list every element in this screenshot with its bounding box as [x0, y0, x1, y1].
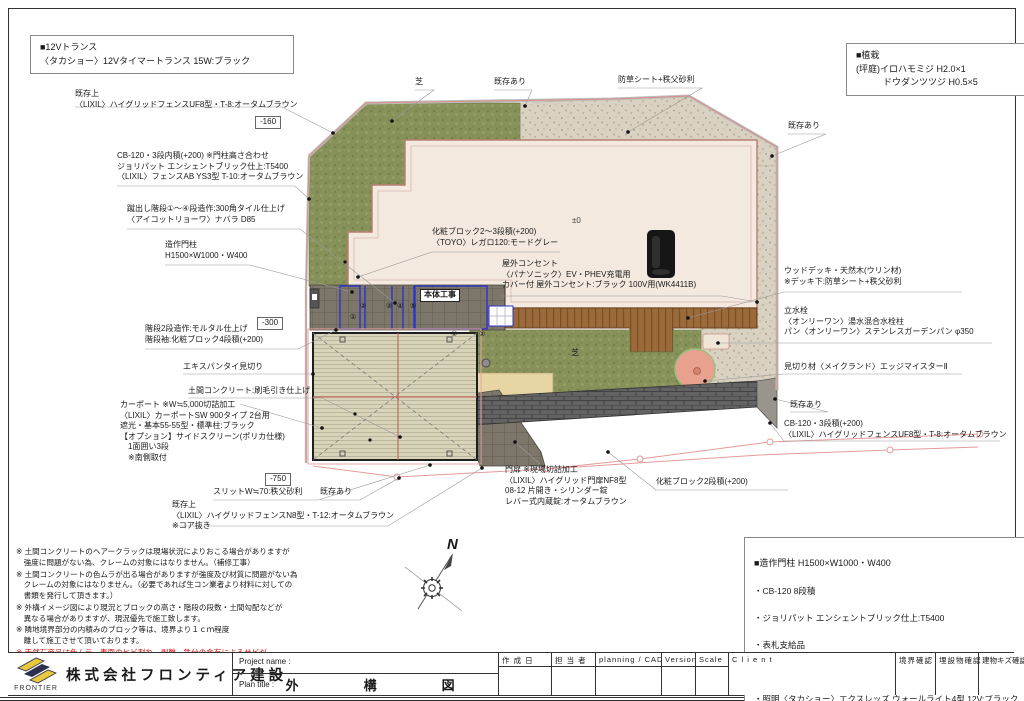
col-head-label: 境界確認: [896, 653, 935, 667]
col-head-label: planning / CAD: [596, 653, 661, 667]
project-name-label: Project name :: [233, 653, 498, 673]
label-lawn-mid: 芝: [571, 348, 579, 359]
plan-title-label: Plan title :: [239, 680, 274, 689]
label-stairs2: 階段2段造作:モルタル仕上げ 階段袖:化粧ブロック4段積(+200): [145, 324, 263, 345]
note-item: ※ 外構イメージ図により現況とブロックの高さ・階段の段数・土間勾配などが 異なる…: [16, 603, 346, 625]
label-expantie: エキスパンタイ見切り: [183, 362, 263, 373]
col-planning-cad: planning / CAD: [595, 653, 661, 695]
label-wood-deck: ウッドデッキ・天然木(ウリン材) ※デッキ下:防草シート+秩父砂利: [784, 266, 902, 287]
project-cell: Project name : Plan title : 外 構 図: [232, 653, 498, 695]
label-slit: スリットW≒70:秩父砂利: [213, 487, 302, 498]
label-fence-uf8-top: 既存上 〈LIXIL〉ハイグリッドフェンスUF8型・T-8:オータムブラウン: [75, 89, 298, 110]
north-arrow: [405, 553, 462, 611]
note-item: ※ 隣地境界部分の内積みのブロック等は、境界より１ｃｍ程度 離して施工させて頂い…: [16, 625, 346, 647]
label-existing-top: 既存あり: [494, 77, 526, 88]
transformer-note-box: ■12Vトランス 〈タカショー〉12Vタイマートランス 15W:ブラック: [30, 35, 294, 74]
col-version: Version: [661, 653, 695, 695]
label-level-160: -160: [255, 116, 281, 129]
note-item: ※ 土間コンクリートのヘアークラックは現場状況によりおこる場合がありますが 強度…: [16, 547, 346, 569]
company-cell: FRONTIER 株式会社フロンティア建設: [8, 653, 232, 695]
drawing-sheet: ■12Vトランス 〈タカショー〉12Vタイマートランス 15W:ブラック ■植栽…: [0, 0, 1024, 701]
garden-pan: [703, 334, 729, 349]
col-client: C l i e n t: [728, 653, 895, 695]
label-keshou-block-2: 化粧ブロック2段積(+200): [656, 477, 748, 488]
label-doma-concrete: 土間コンクリート:刷毛引き仕上げ: [188, 386, 310, 397]
label-hontai-box: 本体工事: [420, 289, 460, 302]
label-existing-top-right: 既存あり: [788, 121, 820, 132]
label-gate-door: 門扉 ※現場切詰加工 〈LIXIL〉ハイグリッド門扉NF8型 08-12 片開き…: [505, 465, 627, 507]
entrance-stairs-tile: [310, 285, 505, 330]
step-number: ①: [350, 313, 356, 321]
step-number-lower: ①: [451, 330, 457, 338]
note-item: ※ 土間コンクリートの色ムラが出る場合がありますが強度及び材質に問題がない為 ク…: [16, 570, 346, 602]
tree-trunk: [694, 368, 701, 375]
col-buried-check: 埋設物確認: [935, 653, 978, 695]
frontier-logo-text: FRONTIER: [14, 685, 58, 692]
col-head-label: Scale: [696, 653, 728, 667]
col-scratch-check: 建物キズ確認: [978, 653, 1014, 695]
label-cb120-fence-ab: CB-120・3段内積(+200) ※門柱高さ合わせ ジョリパット エンシェント…: [117, 151, 303, 183]
company-logo: FRONTIER: [14, 656, 58, 692]
gate-pillar-spec-item: ・ジョリパット エンシェントブリック仕上:T5400: [754, 612, 1024, 625]
label-level-300: -300: [257, 317, 283, 330]
step-number: ③: [386, 302, 392, 310]
title-block: FRONTIER 株式会社フロンティア建設 Project name : Pla…: [8, 652, 1014, 695]
label-water-tap: 立水栓 〈オンリーワン〉湯水混合水栓柱 パン〈オンリーワン〉ステンレスガーデンパ…: [784, 306, 974, 338]
label-carport: カーポート ※W≒5,000切詰加工 〈LIXIL〉カーポートSW 900タイプ…: [120, 400, 285, 463]
col-created-date: 作 成 日: [498, 653, 551, 695]
col-head-label: Version: [662, 653, 695, 667]
col-head-label: 埋設物確認: [936, 653, 978, 667]
label-outdoor-outlet: 屋外コンセント 〈パナソニック〉EV・PHEV充電用 カバー付 屋外コンセント:…: [502, 259, 696, 291]
step-number: ④: [397, 302, 403, 310]
col-boundary-check: 境界確認: [895, 653, 935, 695]
north-label: N: [447, 536, 458, 553]
col-head-label: 担 当 者: [552, 653, 595, 667]
plan-title-value: 外 構 図: [274, 675, 492, 694]
label-existing-right: 既存あり: [790, 400, 822, 411]
step-number: ⑤: [410, 302, 416, 310]
step-number-lower: ②: [479, 330, 485, 338]
gate-pillar-spec-title: ■造作門柱 H1500×W1000・W400: [754, 557, 1024, 571]
label-fence-n8: 既存上 〈LIXIL〉ハイグリッドフェンスN8型・T-12:オータムブラウン ※…: [172, 500, 394, 532]
frontier-logo-icon: [14, 656, 58, 684]
label-cb120-right: CB-120・3段積(+200) 〈LIXIL〉ハイグリッドフェンスUF8型・T…: [784, 419, 1007, 440]
drain-symbol: [482, 359, 490, 367]
label-level-750: -750: [265, 473, 291, 486]
col-head-label: 建物キズ確認: [979, 653, 1014, 667]
gate-pillar-symbol-inner: [312, 294, 317, 300]
label-mikiri: 見切り材〈メイクランド〉エッジマイスターⅡ: [784, 362, 948, 373]
label-level-pm0: ±0: [572, 216, 581, 225]
planting-note-box: ■植栽 (坪庭)イロハモミジ H2.0×1 ドウダンツツジ H0.5×5: [846, 43, 1024, 96]
label-existing-bottom-left: 既存あり: [320, 487, 352, 498]
block-wall-end-cap: [757, 378, 777, 428]
label-lawn-top: 芝: [415, 77, 423, 88]
gate-pillar-spec-item: ・表札支給品: [754, 639, 1024, 652]
step-number: ②: [360, 302, 366, 310]
label-gate-pillar: 造作門柱 H1500×W1000・W400: [165, 240, 248, 261]
gate-pillar-spec-item: ・CB-120 8段積: [754, 585, 1024, 598]
col-head-label: 作 成 日: [499, 653, 551, 667]
col-scale: Scale: [695, 653, 728, 695]
label-keshou-block-23: 化粧ブロック2～3段積(+200) 〈TOYO〉レガロ120:モードグレー: [432, 227, 558, 248]
label-kedashi-stairs: 蹴出し階段①～④段造作:300角タイル仕上げ 〈アイコットリョーワ〉ナバラ D8…: [127, 204, 285, 225]
col-person: 担 当 者: [551, 653, 595, 695]
col-head-label: C l i e n t: [729, 653, 895, 667]
label-weed-sheet: 防草シート+秩父砂利: [618, 75, 695, 86]
